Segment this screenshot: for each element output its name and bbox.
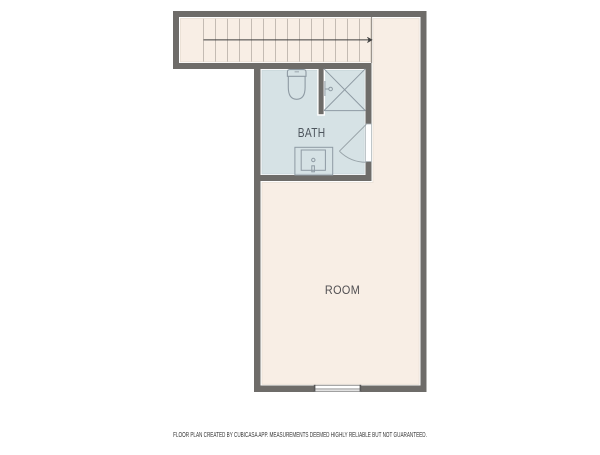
svg-text:FLOOR PLAN CREATED BY CUBICASA: FLOOR PLAN CREATED BY CUBICASA APP. MEAS… <box>173 432 427 439</box>
svg-text:ROOM: ROOM <box>325 285 360 297</box>
svg-text:BATH: BATH <box>298 127 326 140</box>
